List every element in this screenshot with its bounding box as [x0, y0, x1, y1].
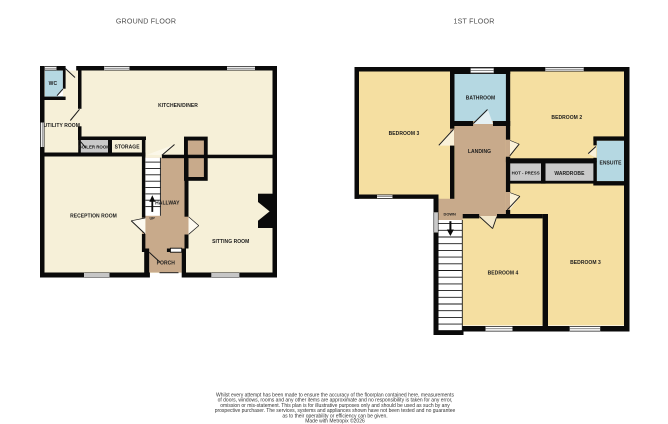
svg-text:HOT - PRESS: HOT - PRESS: [512, 171, 540, 176]
svg-text:UTILITY ROOM: UTILITY ROOM: [44, 123, 80, 129]
svg-text:DOWN: DOWN: [444, 211, 457, 216]
svg-text:BEDROOM 2: BEDROOM 2: [551, 115, 582, 121]
svg-text:WARDROBE: WARDROBE: [554, 171, 585, 177]
svg-text:BEDROOM 4: BEDROOM 4: [488, 270, 519, 276]
svg-text:STORAGE: STORAGE: [115, 144, 141, 150]
svg-text:1ST FLOOR: 1ST FLOOR: [453, 18, 494, 26]
svg-text:Made with Metropix ©2026: Made with Metropix ©2026: [305, 418, 365, 424]
svg-text:ENSUITE: ENSUITE: [599, 160, 622, 166]
svg-text:KITCHEN/DINER: KITCHEN/DINER: [158, 103, 198, 109]
svg-text:BEDROOM 3: BEDROOM 3: [389, 131, 420, 137]
svg-text:UP: UP: [149, 215, 155, 220]
svg-text:GROUND FLOOR: GROUND FLOOR: [116, 18, 176, 26]
svg-text:SITTING ROOM: SITTING ROOM: [212, 239, 249, 245]
svg-text:HALLWAY: HALLWAY: [155, 201, 180, 207]
svg-text:WC: WC: [49, 81, 58, 87]
svg-text:LANDING: LANDING: [468, 149, 491, 155]
svg-text:BEDROOM 3: BEDROOM 3: [570, 260, 601, 266]
svg-text:RECEPTION ROOM: RECEPTION ROOM: [70, 213, 117, 219]
svg-text:PORCH: PORCH: [157, 260, 176, 266]
svg-text:BATHROOM: BATHROOM: [466, 95, 495, 101]
svg-text:BOILER ROOM: BOILER ROOM: [78, 145, 110, 150]
